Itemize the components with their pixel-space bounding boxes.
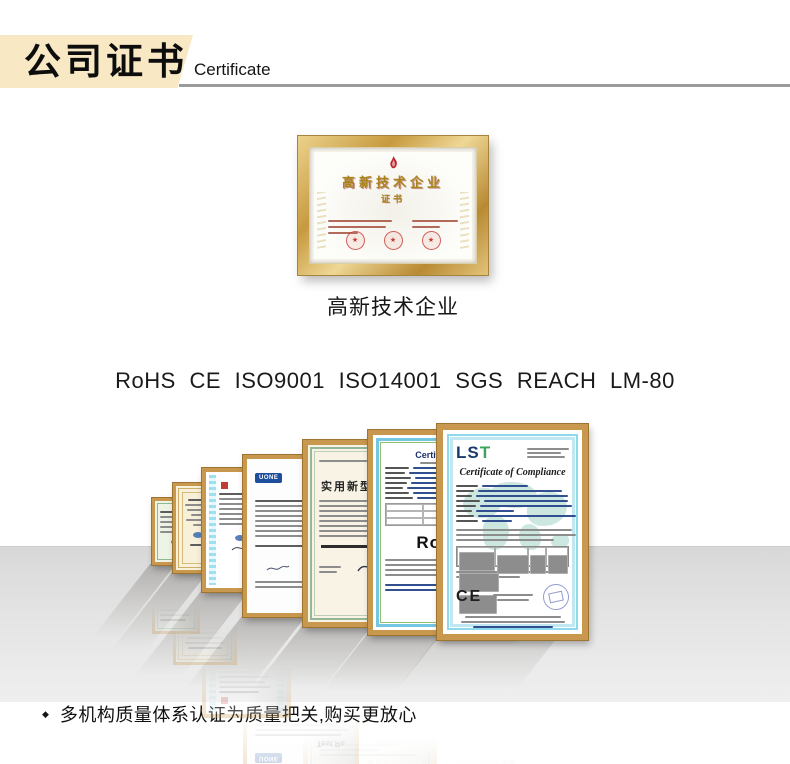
section-title-banner: 公司证书 xyxy=(0,35,193,88)
diamond-bullet-icon: ◆ xyxy=(42,709,49,720)
frame-caption: 高新技术企业 xyxy=(268,291,518,321)
fine-print-lines xyxy=(456,616,569,628)
fine-print-lines xyxy=(527,446,569,460)
round-stamp xyxy=(541,582,572,613)
page-subtitle: Certificate xyxy=(194,60,271,80)
lst-logo: LST xyxy=(456,444,491,461)
flame-icon xyxy=(387,156,400,171)
ce-mark: CE xyxy=(456,588,482,606)
standards-table xyxy=(456,546,569,567)
plaque-title: 高新技术企业 xyxy=(342,172,444,191)
red-seals: ★★★ xyxy=(314,231,472,250)
signature-lines xyxy=(491,591,535,604)
standards-list: RoHS CE ISO9001 ISO14001 SGS REACH LM-80 xyxy=(0,368,790,394)
plaque-subtitle: 证书 xyxy=(381,192,405,205)
fine-print-lines xyxy=(412,216,460,232)
footer-note: ◆ 多机构质量体系认证为质量把关,购买更放心 xyxy=(42,701,417,727)
lace-border xyxy=(209,475,216,585)
certificate-paper: 高新技术企业 证书 ★★★ xyxy=(314,152,472,259)
uone-badge: UONE xyxy=(255,473,282,483)
page-title: 公司证书 xyxy=(24,43,188,80)
red-logo xyxy=(221,482,228,489)
framed-certificate-high-tech-enterprise: 高新技术企业 证书 ★★★ xyxy=(298,136,488,275)
header-divider xyxy=(179,84,790,87)
certificate-paper: LST Certificate of Compliance xyxy=(443,430,582,634)
footer-note-text: 多机构质量体系认证为质量把关,购买更放心 xyxy=(60,701,417,727)
certificate-lst-compliance: LST Certificate of Compliance xyxy=(437,424,588,640)
frame-mat: 高新技术企业 证书 ★★★ xyxy=(309,147,477,264)
signature xyxy=(265,563,291,573)
certificate-title: Certificate of Compliance xyxy=(456,467,569,478)
